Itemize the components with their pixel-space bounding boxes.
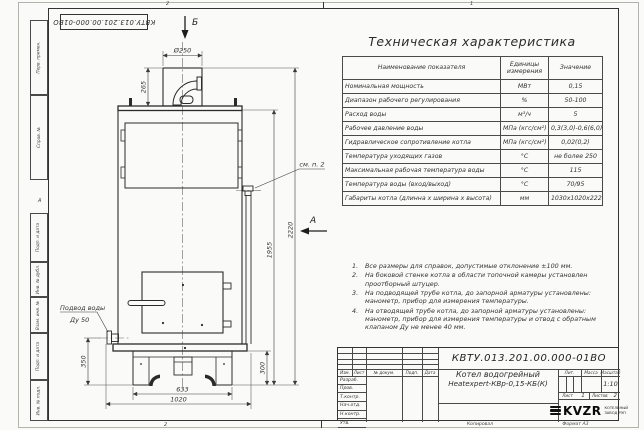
notes-block: 1.Все размеры для справок, допустимые от… bbox=[352, 262, 604, 333]
scale-value: 1:10 bbox=[601, 376, 620, 392]
margin-box-podp-data-2: Подп. и дата bbox=[30, 333, 48, 380]
ash-damper bbox=[174, 357, 192, 375]
note-item: 4.На отводящей трубе котла, до запорной … bbox=[352, 307, 604, 332]
spec-name: Габариты котла (длинна х ширина х высота… bbox=[343, 192, 501, 206]
spec-header-value: Значение bbox=[549, 57, 603, 80]
role-razrab: Разраб. bbox=[338, 376, 366, 385]
spec-name: Температура воды (вход/выход) bbox=[343, 178, 501, 192]
dim-body-height: 1955 bbox=[266, 242, 274, 259]
table-row: Температура воды (вход/выход)°С70/95 bbox=[343, 178, 603, 192]
spec-unit: м³/ч bbox=[501, 108, 549, 122]
margin-box-sprav-no: Справ. № bbox=[30, 95, 48, 180]
note-number: 4. bbox=[352, 307, 365, 332]
spec-unit: мм bbox=[501, 192, 549, 206]
dim-chimney-diameter: Ø250 bbox=[173, 47, 192, 55]
centerlines bbox=[99, 42, 263, 390]
door-handle bbox=[128, 301, 165, 306]
product-name-line2: Heatexpert-КВр-0,15-КБ(К) bbox=[438, 379, 558, 388]
spec-header-units: Единицы измерения bbox=[501, 57, 549, 80]
table-row: Гидравлическое сопротивление котлаМПа (к… bbox=[343, 136, 603, 150]
spec-name: Рабочее давление воды bbox=[343, 122, 501, 136]
note-item: 1.Все размеры для справок, допустимые от… bbox=[352, 262, 604, 270]
margin-box-label: Взам. инв. № bbox=[37, 300, 42, 329]
side-pipe-and-fitting bbox=[243, 186, 253, 344]
scale-label: Масштаб bbox=[601, 369, 620, 376]
zone-number-top-1: 1 bbox=[470, 1, 473, 7]
title-block-doc-number: КВТУ.013.201.00.000-01ВО bbox=[438, 348, 620, 369]
margin-box-label: Перв. примен. bbox=[37, 41, 42, 73]
table-row: Номинальная мощностьМВт0,15 bbox=[343, 80, 603, 94]
spec-name: Максимальная рабочая температура воды bbox=[343, 164, 501, 178]
company-logo: KVZR КОТЕЛЬНЫЙ ЗАВОД РЭП bbox=[558, 399, 620, 422]
sheets-cell: Листов 2 bbox=[589, 392, 620, 399]
note-number: 2. bbox=[352, 271, 365, 288]
product-name: Котел водогрейный Heatexpert-КВр-0,15-КБ… bbox=[438, 370, 558, 403]
view-b-arrow-icon bbox=[182, 30, 189, 39]
dim-total-width: 1020 bbox=[170, 396, 187, 404]
spec-unit: МВт bbox=[501, 80, 549, 94]
foot-right bbox=[205, 375, 216, 387]
door-hinge-top bbox=[223, 283, 231, 289]
spec-table-title: Техническая характеристика bbox=[342, 34, 602, 49]
spec-unit: °С bbox=[501, 150, 549, 164]
col-doc: № докум. bbox=[366, 369, 402, 376]
spec-name: Номинальная мощность bbox=[343, 80, 501, 94]
spec-unit: % bbox=[501, 94, 549, 108]
sheet-label: Лист bbox=[562, 393, 573, 398]
kvzr-logo-text: KVZR bbox=[563, 404, 602, 418]
note-item: 3.На подводящей трубе котла, до запорной… bbox=[352, 289, 604, 306]
table-row: Рабочее давление водыМПа (кгс/см²)0,3(3,… bbox=[343, 122, 603, 136]
table-row: Диапазон рабочего регулирования%50-100 bbox=[343, 94, 603, 108]
table-row: Габариты котла (длинна х ширина х высота… bbox=[343, 192, 603, 206]
spec-name: Температура уходящих газов bbox=[343, 150, 501, 164]
margin-box-inv-podl: Инв. № подл. bbox=[30, 380, 48, 421]
view-b-label: Б bbox=[192, 18, 198, 28]
margin-box-podp-data-1: Подп. и дата bbox=[30, 213, 48, 262]
col-izm: Изм. bbox=[338, 369, 352, 376]
spec-value: 0,02(0,2) bbox=[549, 136, 603, 150]
zone-number-bottom-2: 2 bbox=[164, 422, 167, 428]
dim-total-height: 2220 bbox=[287, 222, 295, 239]
water-supply-dn-label: Ду 50 bbox=[69, 316, 89, 324]
col-list: Лист bbox=[352, 369, 366, 376]
dim-chimney-height: 265 bbox=[140, 81, 148, 93]
col-podp: Подп. bbox=[402, 369, 422, 376]
top-plate bbox=[118, 106, 242, 111]
water-inlet-fitting bbox=[107, 331, 119, 344]
margin-box-label: Справ. № bbox=[37, 127, 42, 148]
spec-value: 5 bbox=[549, 108, 603, 122]
dim-base-height: 300 bbox=[259, 362, 267, 374]
spec-unit: °С bbox=[501, 178, 549, 192]
margin-box-label: Подп. и дата bbox=[37, 223, 42, 252]
spec-unit: МПа (кгс/см²) bbox=[501, 122, 549, 136]
bottom-plate bbox=[113, 344, 247, 351]
door-hinge-bottom bbox=[223, 321, 231, 327]
spec-value: 0,3(3,0)-0,6(6,0) bbox=[549, 122, 603, 136]
footer-copied-label: Копировал bbox=[455, 422, 505, 427]
spec-value: 115 bbox=[549, 164, 603, 178]
spec-value: 70/95 bbox=[549, 178, 603, 192]
zone-tick-top bbox=[323, 2, 324, 8]
lifting-pin-left bbox=[129, 98, 132, 106]
dim-base-width: 633 bbox=[176, 386, 188, 394]
spec-value: не более 250 bbox=[549, 150, 603, 164]
lit-label: Лит. bbox=[558, 369, 581, 376]
product-name-line1: Котел водогрейный bbox=[438, 370, 558, 379]
spec-name: Гидравлическое сопротивление котла bbox=[343, 136, 501, 150]
spec-value: 50-100 bbox=[549, 94, 603, 108]
view-a-label: А bbox=[309, 216, 316, 226]
spec-header-row: Наименование показателя Единицы измерени… bbox=[343, 57, 603, 80]
chimney-elbow bbox=[173, 77, 202, 105]
sheet-value: 1 bbox=[581, 393, 584, 399]
boiler-outline bbox=[113, 68, 247, 351]
role-utv: Утв. bbox=[338, 419, 366, 428]
dimension-lines bbox=[88, 56, 295, 405]
margin-box-label: Подп. и дата bbox=[37, 342, 42, 371]
note-text: На боковой стенке котла в области топочн… bbox=[365, 271, 604, 288]
see-note-2-callout: см. п. 2 bbox=[299, 161, 324, 169]
title-block: Изм. Лист № докум. Подп. Дата Разраб. Пр… bbox=[337, 347, 619, 421]
note-text: На отводящей трубе котла, до запорной ар… bbox=[365, 307, 604, 332]
role-rows: Разраб. Пров. Т.контр. Нач.отд. Н.контр.… bbox=[338, 376, 366, 422]
company-name-line2: ЗАВОД РЭП bbox=[604, 411, 628, 415]
spec-table: Наименование показателя Единицы измерени… bbox=[342, 56, 603, 206]
margin-box-label: Инв. № дубл. bbox=[37, 265, 42, 294]
role-prov: Пров. bbox=[338, 385, 366, 394]
company-name: КОТЕЛЬНЫЙ ЗАВОД РЭП bbox=[604, 406, 628, 415]
sheets-value: 2 bbox=[614, 393, 617, 399]
note-text: Все размеры для справок, допустимые откл… bbox=[365, 262, 604, 270]
upper-panel bbox=[125, 123, 238, 188]
note-text: На подводящей трубе котла, до запорной а… bbox=[365, 289, 604, 306]
foot-left bbox=[149, 375, 160, 387]
view-a-arrow-icon bbox=[300, 228, 309, 235]
water-supply-label: Подвод воды bbox=[60, 304, 105, 312]
lifting-pin-right bbox=[234, 98, 237, 106]
kvzr-logo-icon bbox=[550, 405, 561, 416]
note-number: 3. bbox=[352, 289, 365, 306]
sheet-cell: Лист 1 bbox=[558, 392, 589, 399]
role-tkontr: Т.контр. bbox=[338, 393, 366, 402]
mass-label: Масса bbox=[581, 369, 601, 376]
spec-unit: °С bbox=[501, 164, 549, 178]
table-row: Температура уходящих газов°Сне более 250 bbox=[343, 150, 603, 164]
margin-box-label: Инв. № подл. bbox=[37, 386, 42, 416]
spec-value: 1030х1020х2220 bbox=[549, 192, 603, 206]
role-nachotd: Нач.отд. bbox=[338, 402, 366, 411]
zone-tick-bottom bbox=[321, 421, 322, 428]
spec-header-name: Наименование показателя bbox=[343, 57, 501, 80]
company-name-line1: КОТЕЛЬНЫЙ bbox=[604, 406, 628, 410]
margin-box-inv-dubl: Инв. № дубл. bbox=[30, 262, 48, 297]
view-arrows: Б А bbox=[182, 16, 328, 235]
margin-box-vzam-inv: Взам. инв. № bbox=[30, 297, 48, 333]
footer-format-label: Формат А3 bbox=[548, 422, 603, 427]
note-number: 1. bbox=[352, 262, 365, 270]
margin-box-perv-primen: Перв. примен. bbox=[30, 20, 48, 95]
zone-number-top-2: 2 bbox=[166, 1, 169, 7]
role-nkontr: Н.контр. bbox=[338, 411, 366, 420]
zone-letter-left: А bbox=[38, 198, 41, 204]
spec-name: Расход воды bbox=[343, 108, 501, 122]
dim-inlet-height: 350 bbox=[80, 355, 88, 367]
boiler-front-view-drawing: Ø250 265 350 300 1955 2220 633 1020 см. … bbox=[50, 10, 340, 410]
note-item: 2.На боковой стенке котла в области топо… bbox=[352, 271, 604, 288]
spec-name: Диапазон рабочего регулирования bbox=[343, 94, 501, 108]
spec-unit: МПа (кгс/см²) bbox=[501, 136, 549, 150]
col-data: Дата bbox=[422, 369, 438, 376]
sheets-label: Листов bbox=[592, 393, 608, 398]
table-row: Расход водым³/ч5 bbox=[343, 108, 603, 122]
table-row: Максимальная рабочая температура воды°С1… bbox=[343, 164, 603, 178]
spec-value: 0,15 bbox=[549, 80, 603, 94]
